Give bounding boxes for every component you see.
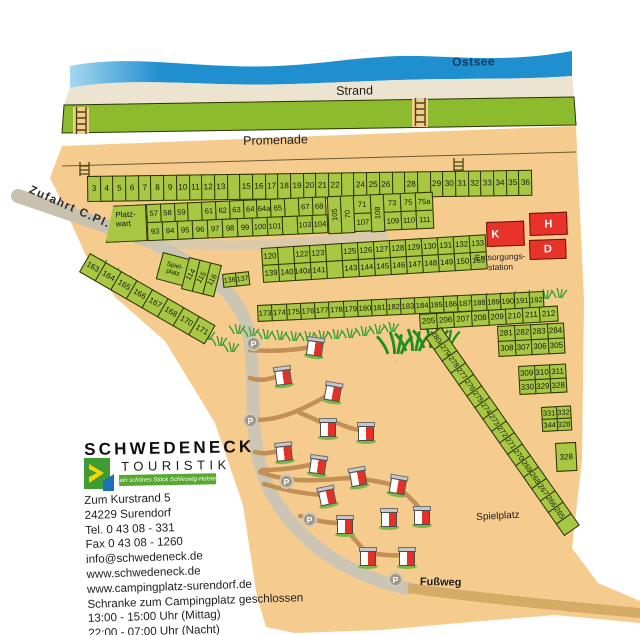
- plot-cell: 107: [354, 212, 373, 232]
- plot-cell: 210: [505, 308, 524, 325]
- beach-hut-icon: [414, 506, 430, 526]
- playground-label: Spielplatz: [476, 510, 520, 523]
- parking-icon: P: [388, 572, 403, 587]
- beach-stairs-icon: [412, 98, 428, 127]
- plot-cell: 209: [488, 309, 507, 326]
- building-d: D: [529, 239, 567, 260]
- plot-cell: 75a: [415, 192, 434, 212]
- plot-cell: 305: [547, 337, 565, 354]
- campsite-map-page: 3456789101112131516171819202122242526282…: [0, 0, 640, 635]
- plot-cell: 36: [518, 170, 532, 196]
- footpath-label: Fußweg: [420, 576, 462, 589]
- plot-cell: 206: [436, 312, 455, 329]
- sea-label: Ostsee: [452, 54, 495, 69]
- plot-pair: 136137: [222, 271, 250, 288]
- plot-cell: 308: [498, 340, 516, 357]
- beach-hut-icon: [323, 381, 342, 403]
- beach-hut-icon: [274, 365, 293, 387]
- plot-cell: 212: [539, 306, 558, 323]
- promenade-label: Promenade: [243, 132, 308, 148]
- parking-icon: P: [243, 413, 258, 428]
- beach-hut-icon: [306, 336, 325, 358]
- plot-cell: 111: [415, 210, 434, 230]
- beach-stairs-icon: [73, 107, 89, 134]
- plot-cell: 307: [514, 339, 532, 356]
- building-h: H: [529, 212, 568, 236]
- plot-cell: 328: [555, 442, 577, 472]
- beach-hut-icon: [360, 547, 376, 567]
- plot-block-c: 331332 344328: [541, 405, 572, 432]
- beach-hut-icon: [399, 547, 415, 567]
- disposal-station-label: Entsorgungs- station: [466, 251, 535, 273]
- logo-banner: ...ein schönes Stück Schleswig-Holstein: [119, 473, 216, 486]
- beach-hut-icon: [337, 515, 353, 535]
- plot-cell: 208: [470, 310, 489, 327]
- beach-hut-icon: [275, 441, 293, 463]
- plot-cell: 68: [311, 196, 327, 216]
- beach-hut-icon: [317, 485, 337, 508]
- plot-cell: 328: [556, 417, 572, 431]
- beach-label: Strand: [336, 83, 373, 98]
- beach-hut-icon: [309, 454, 328, 476]
- plot-cell: 104: [312, 214, 329, 234]
- beach-hut-icon: [381, 508, 397, 528]
- plot-cell: 109: [384, 211, 403, 231]
- plot-cell: 73: [383, 193, 402, 213]
- beach-hut-icon: [348, 466, 367, 488]
- building-k: K: [486, 221, 525, 247]
- beach-hut-icon: [358, 422, 374, 442]
- plot-cell: 306: [531, 338, 549, 355]
- plot-cell: 137: [235, 271, 250, 286]
- parking-icon: P: [246, 336, 261, 351]
- address-block: Zum Kurstrand 524229 SurendorfTel. 0 43 …: [84, 487, 304, 635]
- plot-block-a: 281282283284 308307306305: [497, 322, 566, 356]
- logo-subtitle: TOURISTIK: [121, 457, 231, 474]
- plot-cell: 207: [453, 311, 472, 328]
- plot-cell: 211: [522, 307, 541, 324]
- parking-icon: P: [302, 512, 317, 527]
- plot-cell: 328: [550, 377, 567, 393]
- plot-block-b: 309310311 330329328: [518, 364, 567, 395]
- beach-hut-icon: [388, 474, 407, 496]
- beach-hut-icon: [320, 418, 336, 438]
- plot-cell: 205: [419, 313, 438, 330]
- plot-cell: 71: [353, 194, 372, 214]
- logo-icon: [84, 456, 114, 492]
